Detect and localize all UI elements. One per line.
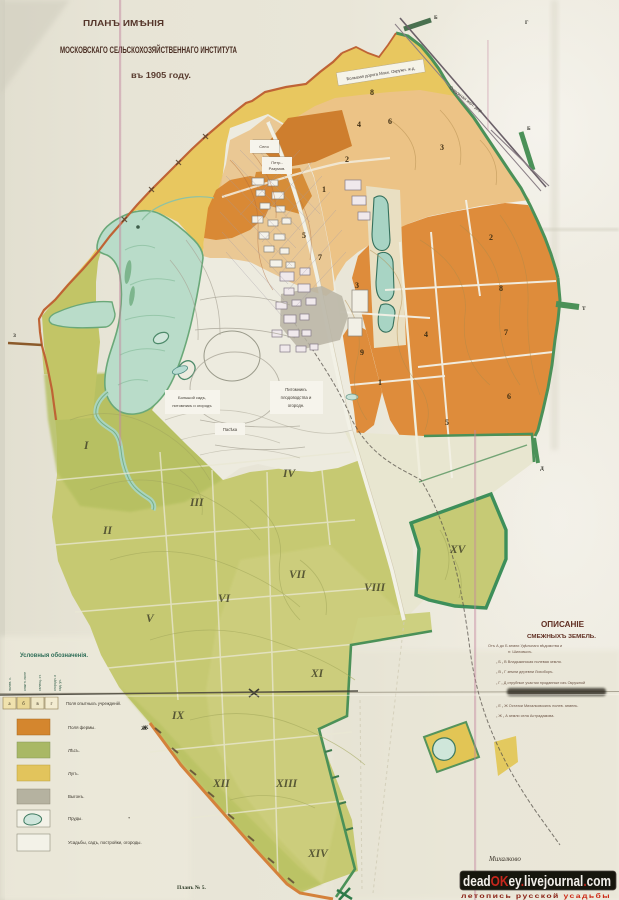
svg-text:Михалково: Михалково xyxy=(488,855,521,863)
svg-text:З: З xyxy=(13,333,16,339)
svg-text:V: V xyxy=(146,613,155,625)
svg-text:1: 1 xyxy=(322,185,326,194)
svg-text:XII: XII xyxy=(212,778,230,790)
svg-text:селекц. ст.: селекц. ст. xyxy=(38,674,42,691)
svg-text:„ Г „ Д отрубные участки пр: „ Г „ Д отрубные участки проданные изъ О… xyxy=(496,681,585,685)
svg-text:VIII: VIII xyxy=(364,582,386,594)
svg-text:Выгонъ.: Выгонъ. xyxy=(68,794,84,799)
svg-text:IX: IX xyxy=(171,710,184,722)
svg-text:XV: XV xyxy=(449,544,467,556)
svg-text:2: 2 xyxy=(489,233,493,242)
svg-text:Г: Г xyxy=(525,20,529,26)
svg-text:Планъ № 5.: Планъ № 5. xyxy=(177,885,207,891)
svg-text:Усадьбы, садъ, постройки, огор: Усадьбы, садъ, постройки, огороды. xyxy=(68,840,142,845)
svg-text:4: 4 xyxy=(357,120,361,129)
svg-text:Пруды.: Пруды. xyxy=(68,816,83,821)
svg-text:СМЕЖНЫХЪ ЗЕМЕЛЬ.: СМЕЖНЫХЪ ЗЕМЕЛЬ. xyxy=(527,634,596,640)
svg-text:7: 7 xyxy=(504,328,508,337)
svg-text:Ж: Ж xyxy=(141,726,147,732)
svg-text:Д: Д xyxy=(540,466,544,472)
svg-text:6: 6 xyxy=(388,117,392,126)
svg-text:летопись русской усадьбы: летопись русской усадьбы xyxy=(461,892,611,900)
svg-text:Село: Село xyxy=(259,144,269,149)
svg-text:6: 6 xyxy=(507,392,511,401)
svg-text:IV: IV xyxy=(282,468,296,480)
svg-text:Т: Т xyxy=(582,306,586,312)
svg-text:7: 7 xyxy=(318,253,322,262)
svg-text:питомникъ и огородъ: питомникъ и огородъ xyxy=(172,403,212,408)
svg-text:VI: VI xyxy=(218,593,231,605)
svg-text:б: б xyxy=(22,702,25,707)
svg-text:Питомникъ: Питомникъ xyxy=(285,387,307,392)
svg-text:МОСКОВСКАГО СЕЛЬСКОХОЗЯЙСТВЕНН: МОСКОВСКАГО СЕЛЬСКОХОЗЯЙСТВЕННАГО ИНСТИТ… xyxy=(60,44,237,56)
svg-text:г: г xyxy=(50,702,52,707)
svg-text:Лѣсъ.: Лѣсъ. xyxy=(68,748,80,753)
svg-text:Отъ А до Б земли Удѣльнаго вѣд: Отъ А до Б земли Удѣльнаго вѣдомства и xyxy=(488,644,562,648)
svg-text:8: 8 xyxy=(370,88,374,97)
svg-text:плодоводства и: плодоводства и xyxy=(281,395,312,400)
svg-text:опытн. поле: опытн. поле xyxy=(23,672,27,691)
svg-text:гг. Шиловыхъ.: гг. Шиловыхъ. xyxy=(508,650,532,654)
svg-text:Б: Б xyxy=(527,126,531,132)
svg-text:VII: VII xyxy=(289,569,306,581)
svg-text:XIII: XIII xyxy=(275,778,298,790)
svg-text:Лугъ.: Лугъ. xyxy=(68,771,79,776)
svg-text:9: 9 xyxy=(360,348,364,357)
svg-text:ПЛАНЪ ИМѢНІЯ: ПЛАНЪ ИМѢНІЯ xyxy=(83,18,164,28)
svg-text:8: 8 xyxy=(499,284,503,293)
svg-text:„ В „ Г земли деревни Лихоб: „ В „ Г земли деревни Лихоборъ. xyxy=(496,670,553,674)
svg-text:полев. с.: полев. с. xyxy=(8,677,12,691)
svg-text:5: 5 xyxy=(302,231,306,240)
svg-text:Разумов.: Разумов. xyxy=(269,166,286,171)
svg-text:II: II xyxy=(102,525,112,537)
svg-text:„ Ж „ А земли села Астрадам: „ Ж „ А земли села Астрадамова. xyxy=(496,714,554,718)
svg-text:3: 3 xyxy=(355,281,359,290)
svg-text:Большой садъ,: Большой садъ, xyxy=(178,395,206,400)
svg-text:2: 2 xyxy=(345,155,349,164)
svg-text:3: 3 xyxy=(440,143,444,152)
svg-text:XIV: XIV xyxy=(307,848,329,860)
svg-text:I: I xyxy=(83,440,89,452)
svg-text:5: 5 xyxy=(445,418,449,427)
svg-text:Поля опытныхъ учрежденій.: Поля опытныхъ учрежденій. xyxy=(66,701,121,706)
svg-text:Поля фермы.: Поля фермы. xyxy=(68,725,96,730)
svg-text:Б: Б xyxy=(434,15,438,21)
svg-text:огородн. и: огородн. и xyxy=(53,675,57,691)
svg-text:deadOKey.livejournal.com: deadOKey.livejournal.com xyxy=(463,873,611,890)
svg-text:сад. уч.: сад. уч. xyxy=(58,679,62,691)
svg-text:Петр.-: Петр.- xyxy=(271,160,283,165)
svg-text:„ Е „ Ж Остатки Михалковски: „ Е „ Ж Остатки Михалковскихъ полев. зем… xyxy=(496,704,578,708)
svg-text:Пасѣка: Пасѣка xyxy=(223,427,238,432)
svg-text:1: 1 xyxy=(378,378,382,387)
svg-text:XI: XI xyxy=(310,668,324,680)
svg-text:4: 4 xyxy=(424,330,428,339)
svg-text:„ Б „ В Владыкинская полева: „ Б „ В Владыкинская полевая земля. xyxy=(496,660,562,664)
svg-text:*: * xyxy=(128,816,130,821)
svg-text:огородн.: огородн. xyxy=(288,403,305,408)
svg-text:въ 1905 году.: въ 1905 году. xyxy=(131,71,191,80)
svg-text:Условныя обозначенія.: Условныя обозначенія. xyxy=(20,652,88,659)
svg-text:III: III xyxy=(189,497,204,509)
svg-text:ОПИСАНІЕ: ОПИСАНІЕ xyxy=(541,620,585,629)
